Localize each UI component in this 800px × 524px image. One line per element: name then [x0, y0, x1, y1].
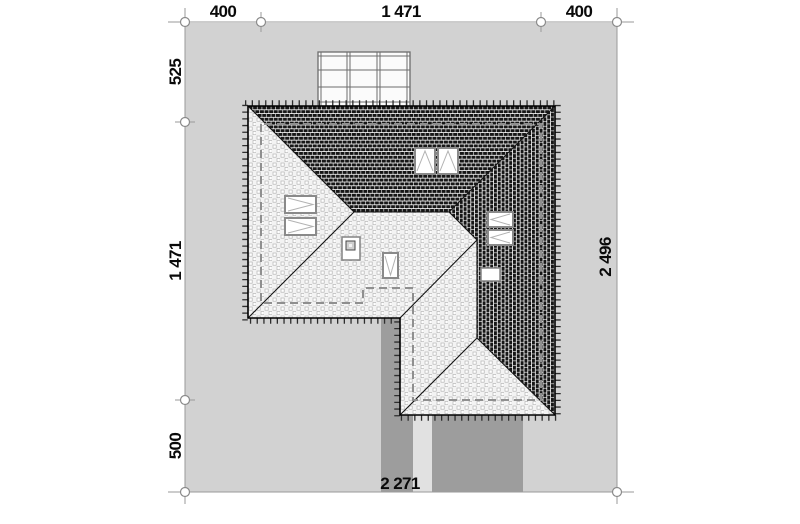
roof-window: [415, 148, 435, 174]
dimension-label-top-center: 1 471: [381, 2, 421, 21]
roof-window: [383, 253, 398, 278]
dimension-label-top-right: 400: [566, 2, 593, 21]
dimension-label-left-lower: 500: [166, 433, 185, 460]
site-plan-page: 400 1 471 400 525 1 471 500 2 496 2 271: [0, 0, 800, 524]
roof-window: [438, 148, 458, 174]
roof-site-plan-drawing: 400 1 471 400 525 1 471 500 2 496 2 271: [0, 0, 800, 524]
dimension-label-left-middle: 1 471: [166, 241, 185, 281]
roof-window: [285, 218, 316, 235]
dimension-label-right: 2 496: [596, 237, 615, 277]
dimension-label-bottom: 2 271: [380, 474, 420, 493]
roof-window: [488, 212, 513, 227]
chimney: [481, 268, 500, 281]
chimney: [342, 237, 360, 260]
dimension-label-top-left: 400: [210, 2, 237, 21]
dimension-label-left-upper: 525: [166, 59, 185, 86]
roof-window: [488, 230, 513, 245]
roof-window: [285, 196, 316, 213]
driveway-wide: [432, 415, 523, 492]
pergola-trellis: [318, 52, 410, 106]
